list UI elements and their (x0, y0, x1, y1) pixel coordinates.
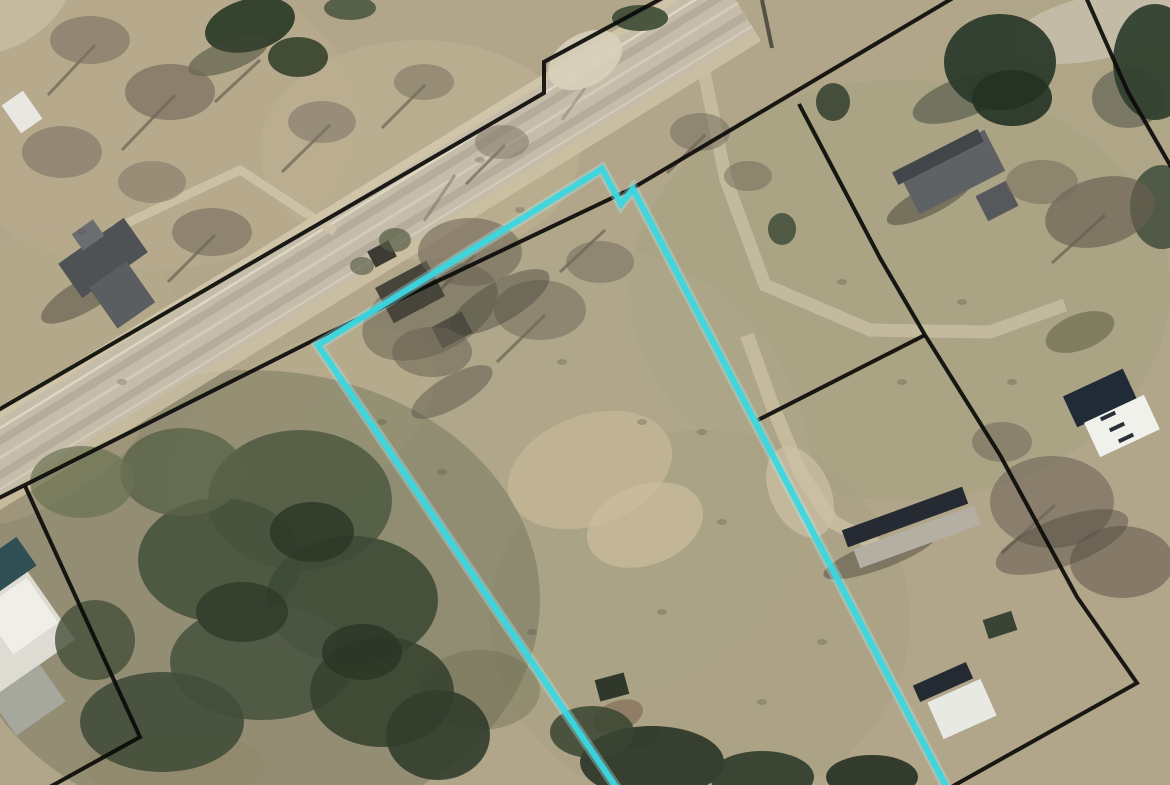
ground-speckle (377, 419, 387, 425)
bare-tree (50, 16, 130, 64)
ground-speckle (637, 419, 647, 425)
ground-speckle (77, 229, 87, 235)
bush (350, 257, 374, 275)
bare-tree (118, 161, 186, 203)
ground-speckle (757, 699, 767, 705)
ground-speckle (897, 379, 907, 385)
bare-tree (394, 64, 454, 100)
bare-tree (670, 113, 730, 151)
bare-tree (288, 101, 356, 143)
ground-speckle (557, 359, 567, 365)
bush (768, 213, 796, 245)
bare-tree (172, 208, 252, 256)
ground-speckle (437, 469, 447, 475)
bare-tree (125, 64, 215, 120)
ground-speckle (527, 629, 537, 635)
woods-shadow-core (196, 582, 288, 642)
bare-tree (1006, 160, 1078, 204)
ground-speckle (1007, 379, 1017, 385)
bare-tree (566, 241, 634, 283)
ground-speckle (717, 519, 727, 525)
bush (816, 83, 850, 121)
ground-speckle (117, 379, 127, 385)
ground-speckle (817, 639, 827, 645)
ground-speckle (837, 279, 847, 285)
pine-tree (972, 70, 1052, 126)
bare-tree (724, 161, 772, 191)
ground-speckle (475, 157, 485, 163)
bare-tree (22, 126, 102, 178)
aerial-map-view[interactable] (0, 0, 1170, 785)
woods-canopy (120, 428, 244, 516)
ground-speckle (657, 609, 667, 615)
ground-speckle (957, 299, 967, 305)
ground-speckle (697, 429, 707, 435)
bush (379, 228, 411, 252)
pine-tree (268, 37, 328, 77)
woods-canopy (386, 690, 490, 780)
woods-shadow-core (322, 624, 402, 680)
aerial-basemap (0, 0, 1170, 785)
woods-shadow-core (270, 502, 354, 562)
